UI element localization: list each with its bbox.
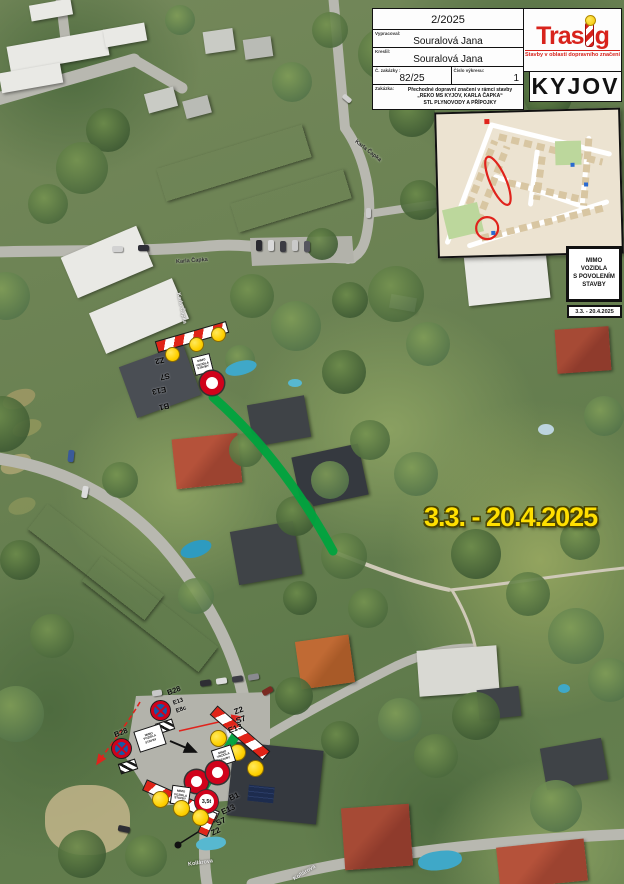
- traffic-plan-drawing: MIMOVOZIDLASTAVBY Z2 S7 E13 B1 MIMOVOZID…: [0, 0, 624, 884]
- field-label: Zakázka:: [375, 86, 394, 91]
- logo-text-left: Tras: [536, 25, 583, 48]
- notice-line: STAVBY: [582, 282, 605, 290]
- barber-pole-icon: [585, 22, 594, 47]
- warning-beacon-icon: [210, 730, 227, 747]
- construction-date-text: 3.3. - 20.4.2025: [424, 502, 597, 533]
- vypracoval-value: Souralová Jana: [373, 36, 523, 47]
- logo-text-right: g: [595, 25, 609, 48]
- notice-line: S POVOLENÍM: [573, 274, 615, 282]
- zakazka-number: 82/25: [373, 73, 451, 84]
- sign-code-label: Z2: [154, 355, 165, 366]
- logo-ball-icon: [585, 15, 596, 26]
- warning-beacon-icon: [173, 800, 190, 817]
- kreslil-value: Souralová Jana: [373, 54, 523, 65]
- logo-cell: Tras g Stavby v oblasti dopravního znače…: [523, 8, 622, 72]
- warning-beacon-icon: [247, 760, 264, 777]
- no-entry-sign-icon: [206, 761, 229, 784]
- inset-map-graphic: [436, 110, 617, 252]
- logo-tagline: Stavby v oblasti dopravního značení: [525, 50, 620, 58]
- overview-inset-map: [434, 108, 624, 259]
- vypracoval-cell: Vypracoval: Souralová Jana: [372, 29, 524, 49]
- exception-notice-box: MIMO VOZIDLA S POVOLENÍM STAVBY: [566, 246, 622, 302]
- no-stopping-sign-icon: [112, 739, 131, 758]
- warning-beacon-icon: [192, 809, 209, 826]
- notice-line: VOZIDLA: [581, 266, 607, 274]
- drawing-number: 1: [513, 73, 519, 84]
- warning-beacon-icon: [152, 791, 169, 808]
- trasig-logo: Tras g: [536, 22, 609, 47]
- warning-beacon-icon: [189, 337, 204, 352]
- doc-number-cell: 2/2025: [372, 8, 524, 30]
- zakazka-cell: Zakázka: Přechodné dopravní značení v rá…: [372, 84, 524, 110]
- drawing-number-cell: Číslo výkresu: 1: [451, 66, 525, 86]
- no-stopping-sign-icon: [151, 701, 170, 720]
- warning-beacon-icon: [165, 347, 180, 362]
- warning-beacon-icon: [211, 327, 226, 342]
- zakazka-text: Přechodné dopravní značení v rámci stavb…: [399, 87, 521, 106]
- notice-line: MIMO: [586, 258, 602, 266]
- kreslil-cell: Kreslil: Souralová Jana: [372, 47, 524, 67]
- field-label: Číslo výkresu:: [454, 68, 485, 73]
- zakazka-number-cell: Č. zakázky : 82/25: [372, 66, 452, 86]
- doc-number: 2/2025: [373, 14, 523, 26]
- no-entry-sign-icon: [200, 371, 224, 395]
- date-stamp-box: 3.3. - 20.4.2025: [567, 305, 622, 318]
- city-name: KYJOV: [529, 71, 622, 102]
